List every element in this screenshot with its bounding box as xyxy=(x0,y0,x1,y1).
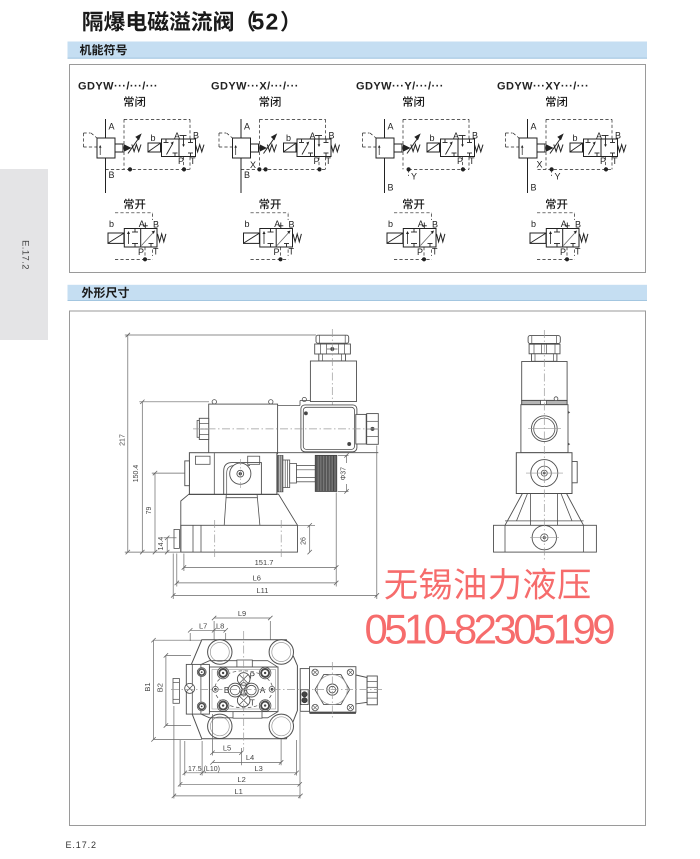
svg-text:L4: L4 xyxy=(246,753,254,762)
svg-text:A: A xyxy=(418,219,424,229)
svg-text:B2: B2 xyxy=(155,683,164,692)
svg-text:L1: L1 xyxy=(235,787,243,796)
svg-text:T: T xyxy=(250,699,255,708)
svg-text:P: P xyxy=(274,247,280,257)
svg-text:B: B xyxy=(193,130,199,140)
svg-text:52: 52 xyxy=(252,9,280,35)
svg-text:B: B xyxy=(575,220,581,230)
svg-text:B: B xyxy=(615,130,621,140)
svg-text:GDYW···XY···/···: GDYW···XY···/··· xyxy=(497,81,589,93)
svg-text:P: P xyxy=(560,247,566,257)
svg-text:B: B xyxy=(472,130,478,140)
svg-text:b: b xyxy=(573,133,578,143)
svg-text:B: B xyxy=(432,220,438,230)
svg-text:A: A xyxy=(139,219,145,229)
svg-text:A: A xyxy=(310,131,316,141)
svg-text:A: A xyxy=(174,131,180,141)
svg-text:b: b xyxy=(109,219,114,229)
svg-text:L2: L2 xyxy=(237,775,245,784)
svg-text:P: P xyxy=(138,247,144,257)
svg-text:B: B xyxy=(531,183,537,193)
svg-text:E.17.2: E.17.2 xyxy=(66,840,97,850)
svg-text:A: A xyxy=(596,131,602,141)
svg-text:L3: L3 xyxy=(254,764,262,773)
svg-text:GDYW···X/···/···: GDYW···X/···/··· xyxy=(211,81,299,93)
svg-text:Φ37: Φ37 xyxy=(341,467,348,480)
svg-text:P: P xyxy=(250,671,255,680)
svg-text:A: A xyxy=(274,219,280,229)
svg-text:A: A xyxy=(531,122,537,132)
svg-text:B1: B1 xyxy=(143,682,152,691)
svg-text:T: T xyxy=(432,247,438,257)
svg-text:L5: L5 xyxy=(223,744,231,753)
svg-text:B: B xyxy=(224,686,229,695)
svg-text:P: P xyxy=(417,247,423,257)
svg-text:T: T xyxy=(289,247,295,257)
svg-text:17.5 (L10): 17.5 (L10) xyxy=(188,766,220,773)
svg-text:A: A xyxy=(244,122,250,132)
svg-text:14.4: 14.4 xyxy=(158,537,165,551)
svg-text:L8: L8 xyxy=(216,622,224,631)
svg-text:L11: L11 xyxy=(257,586,269,595)
svg-text:Y: Y xyxy=(555,172,561,182)
svg-text:0510-82305199: 0510-82305199 xyxy=(365,606,615,653)
svg-text:T: T xyxy=(190,156,196,166)
svg-text:A: A xyxy=(388,122,394,132)
svg-text:X: X xyxy=(537,160,543,170)
svg-text:GDYW···Y/···/···: GDYW···Y/···/··· xyxy=(356,81,444,93)
svg-text:B: B xyxy=(153,220,159,230)
svg-text:b: b xyxy=(151,133,156,143)
svg-text:L6: L6 xyxy=(253,574,261,583)
svg-text:P: P xyxy=(457,156,463,166)
svg-text:26: 26 xyxy=(300,537,307,545)
svg-text:X: X xyxy=(250,160,256,170)
svg-text:B: B xyxy=(109,170,115,180)
svg-text:P: P xyxy=(600,156,606,166)
svg-text:b: b xyxy=(430,133,435,143)
svg-text:T: T xyxy=(326,156,332,166)
svg-text:b: b xyxy=(245,219,250,229)
svg-text:b: b xyxy=(531,219,536,229)
svg-text:T: T xyxy=(153,247,159,257)
svg-text:A: A xyxy=(109,122,115,132)
svg-text:T: T xyxy=(469,156,475,166)
svg-text:B: B xyxy=(289,220,295,230)
svg-text:Y: Y xyxy=(411,172,417,182)
svg-text:B: B xyxy=(388,183,394,193)
svg-text:150.4: 150.4 xyxy=(133,465,140,483)
svg-text:217: 217 xyxy=(119,434,126,446)
svg-text:A: A xyxy=(260,686,266,695)
svg-text:b: b xyxy=(286,133,291,143)
svg-text:GDYW···/···/···: GDYW···/···/··· xyxy=(78,81,158,93)
svg-text:B: B xyxy=(244,170,250,180)
svg-text:P: P xyxy=(314,156,320,166)
svg-text:79: 79 xyxy=(146,507,153,515)
svg-text:151.7: 151.7 xyxy=(255,558,274,567)
svg-text:T: T xyxy=(612,156,618,166)
svg-text:b: b xyxy=(388,219,393,229)
svg-text:P: P xyxy=(178,156,184,166)
svg-text:L9: L9 xyxy=(238,609,246,618)
svg-text:T: T xyxy=(575,247,581,257)
svg-text:B: B xyxy=(329,130,335,140)
svg-text:A: A xyxy=(561,219,567,229)
svg-text:E.17.2: E.17.2 xyxy=(20,240,31,270)
svg-text:A: A xyxy=(453,131,459,141)
svg-text:L7: L7 xyxy=(199,622,207,631)
